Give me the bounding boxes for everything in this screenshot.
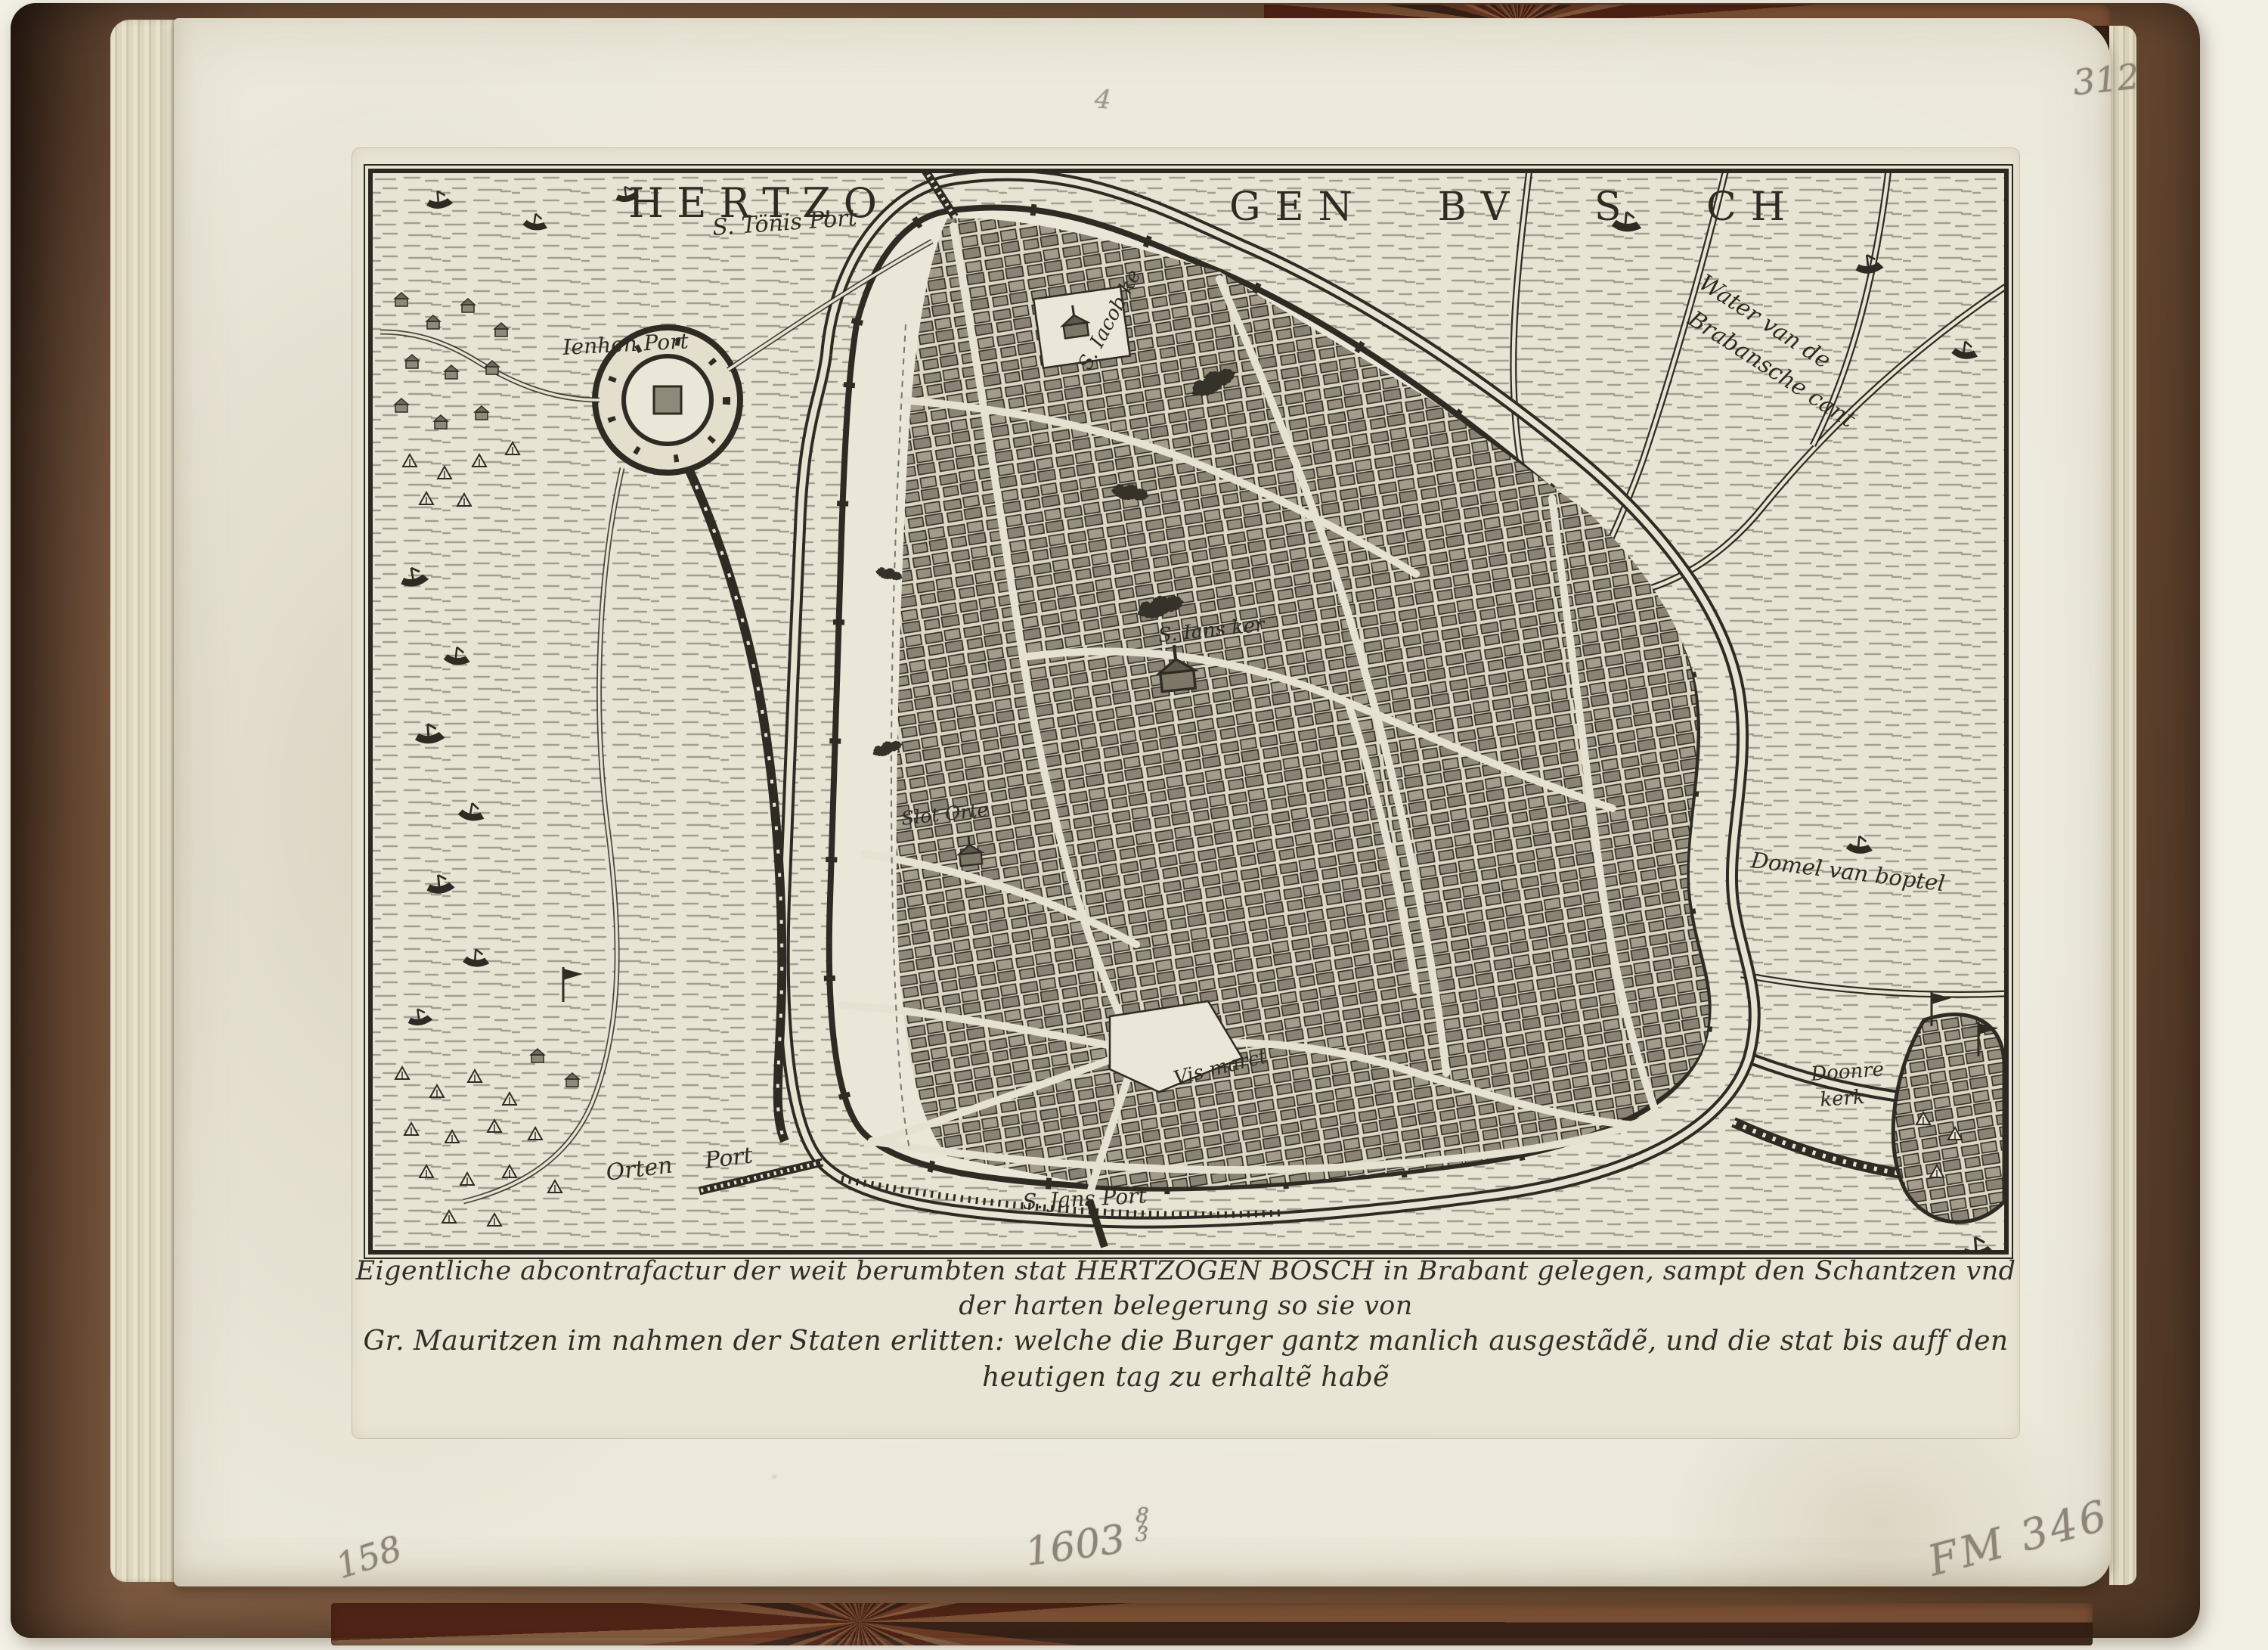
page-stack-edges-left xyxy=(110,20,180,1582)
marbled-endpaper-bottom xyxy=(331,1603,2093,1645)
map-border-frame: HERTZO GEN BV S CH S. Tönis Port Ienhen … xyxy=(368,169,2009,1255)
label-doonre-2: kerk xyxy=(1819,1086,1865,1112)
engraved-city-map: HERTZO GEN BV S CH S. Tönis Port Ienhen … xyxy=(373,173,2004,1250)
pencil-inventory-number: FM 346 xyxy=(1923,1490,2115,1586)
book-page: HERTZO GEN BV S CH S. Tönis Port Ienhen … xyxy=(174,18,2111,1586)
caption-line-1: Eigentliche abcontrafactur der weit beru… xyxy=(352,1254,2019,1323)
pencil-year: 1603 xyxy=(1023,1516,1128,1575)
pencil-small-number: 4 xyxy=(1094,84,1112,115)
book-spine-shadow xyxy=(11,3,124,1638)
page-stack-edges-right xyxy=(2109,26,2136,1585)
pencil-page-number: 312 xyxy=(2071,56,2141,104)
engraved-caption: Eigentliche abcontrafactur der weit beru… xyxy=(352,1254,2019,1396)
pencil-fraction: 8 3 xyxy=(1135,1506,1151,1544)
pencil-date-annotation: 1603 8 3 xyxy=(1023,1513,1154,1576)
caption-line-2: Gr. Mauritzen im nahmen der Staten erlit… xyxy=(352,1323,2019,1396)
pencil-folio-number: 158 xyxy=(331,1527,407,1586)
scanned-book-photo: HERTZO GEN BV S CH S. Tönis Port Ienhen … xyxy=(0,0,2268,1650)
pencil-fraction-bottom: 3 xyxy=(1136,1525,1149,1544)
map-title-right: GEN BV S CH xyxy=(1229,185,1799,230)
engraved-plate: HERTZO GEN BV S CH S. Tönis Port Ienhen … xyxy=(352,148,2019,1438)
